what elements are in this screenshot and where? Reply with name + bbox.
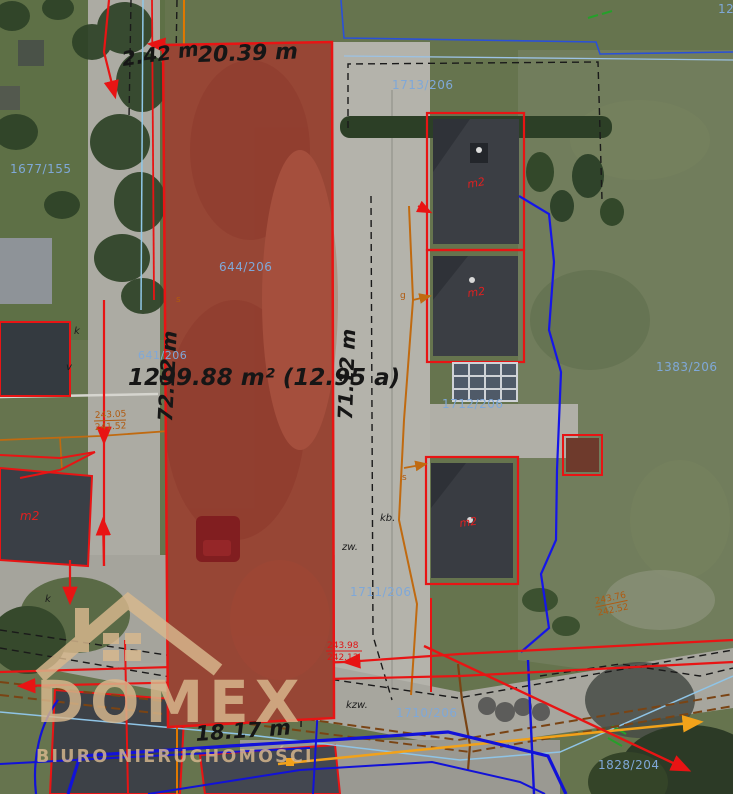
letter-s-2: s bbox=[176, 295, 181, 305]
watermark-subtitle: BIURO NIERUCHOMOŚCI bbox=[36, 745, 314, 767]
garage bbox=[563, 435, 602, 475]
parcel-area-label: 1299.88 m² (12.95 a) bbox=[128, 365, 400, 391]
left-building-lower bbox=[0, 468, 92, 566]
parcel-label-641-206: 641/206 bbox=[138, 349, 187, 362]
parcel-label-partial: 12 bbox=[718, 2, 733, 16]
left-building-upper bbox=[0, 322, 70, 396]
parcel-label-1828-204: 1828/204 bbox=[598, 758, 660, 772]
letter-kzw: kzw. bbox=[346, 700, 368, 711]
solar-panel-array bbox=[452, 362, 518, 402]
letter-kb: kb. bbox=[380, 513, 395, 524]
letter-s-1: s bbox=[402, 473, 407, 483]
map-canvas[interactable]: 2.42 m 20.39 m 72.12 m 71.12 m 1299.88 m… bbox=[0, 0, 733, 794]
house-2-code: m2 bbox=[467, 285, 486, 300]
house-3-code: m2 bbox=[459, 515, 478, 530]
parcel-label-1677-155: 1677/155 bbox=[10, 162, 72, 176]
parcel-label-1711-206: 1711/206 bbox=[350, 585, 412, 599]
parcel-label-1710-206: 1710/206 bbox=[396, 706, 458, 720]
watermark-title: DOMEX bbox=[36, 668, 306, 736]
parcel-label-1713-206: 1713/206 bbox=[392, 78, 454, 92]
left-building-code: m2 bbox=[20, 509, 39, 523]
elevation-red-top: 243.98 bbox=[327, 641, 359, 651]
elevation-left-bottom: 241.52 bbox=[95, 421, 127, 433]
watermark-chimney-icon bbox=[75, 608, 89, 652]
dim-top: 20.39 m bbox=[197, 40, 298, 68]
cadastral-map-svg: 2.42 m 20.39 m 72.12 m 71.12 m 1299.88 m… bbox=[0, 0, 733, 794]
parcel-label-1383-206: 1383/206 bbox=[656, 360, 718, 374]
letter-zw: zw. bbox=[341, 542, 358, 553]
house-2 bbox=[427, 250, 524, 362]
elevation-left-top: 243.05 bbox=[95, 409, 127, 421]
parcel-label-644-206: 644/206 bbox=[219, 260, 272, 274]
letter-g: g bbox=[400, 291, 406, 301]
elevation-red-bottom: 242.13 bbox=[327, 653, 359, 663]
parcel-label-1712-206: 1712/206 bbox=[442, 397, 504, 411]
